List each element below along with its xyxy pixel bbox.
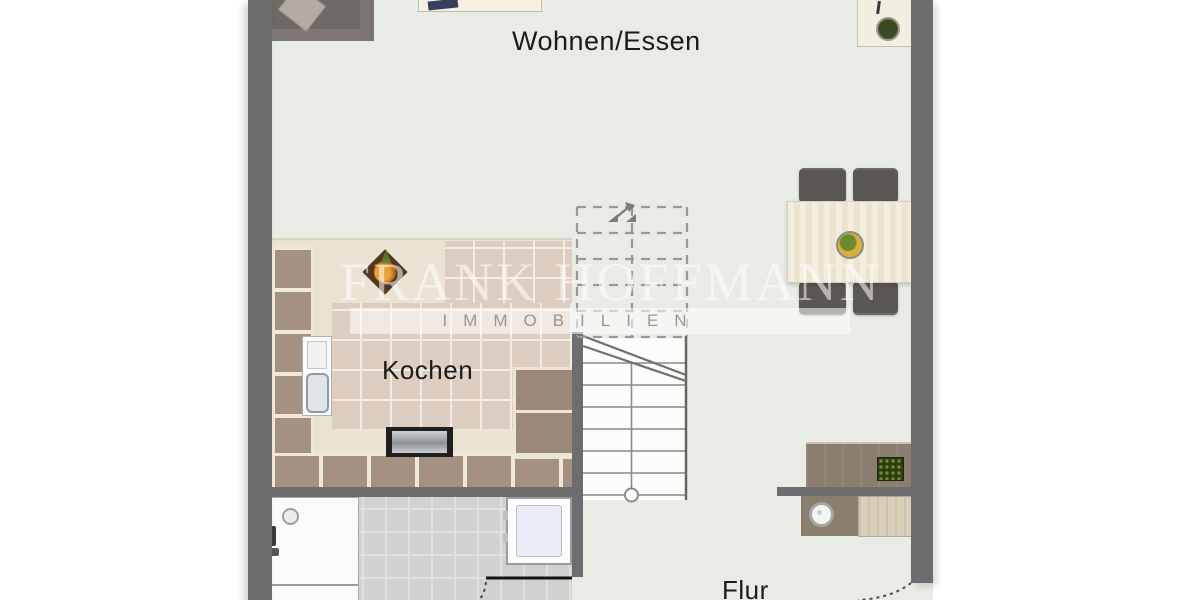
room-label-living-dining: Wohnen/Essen	[512, 26, 701, 57]
watermark-band: IMMOBILIEN	[350, 308, 850, 334]
door-swing-arc	[858, 583, 911, 600]
staircase	[583, 336, 686, 502]
room-label-hallway: Flur	[722, 575, 769, 600]
door-swing-arc	[479, 582, 486, 600]
watermark-division: IMMOBILIEN	[442, 311, 702, 331]
room-label-kitchen: Kochen	[382, 355, 473, 386]
floor-plan-canvas: Wohnen/Essen Kochen Flur FRANK HOFFMANN …	[0, 0, 1200, 600]
watermark-company-name: FRANK HOFFMANN	[340, 251, 882, 313]
